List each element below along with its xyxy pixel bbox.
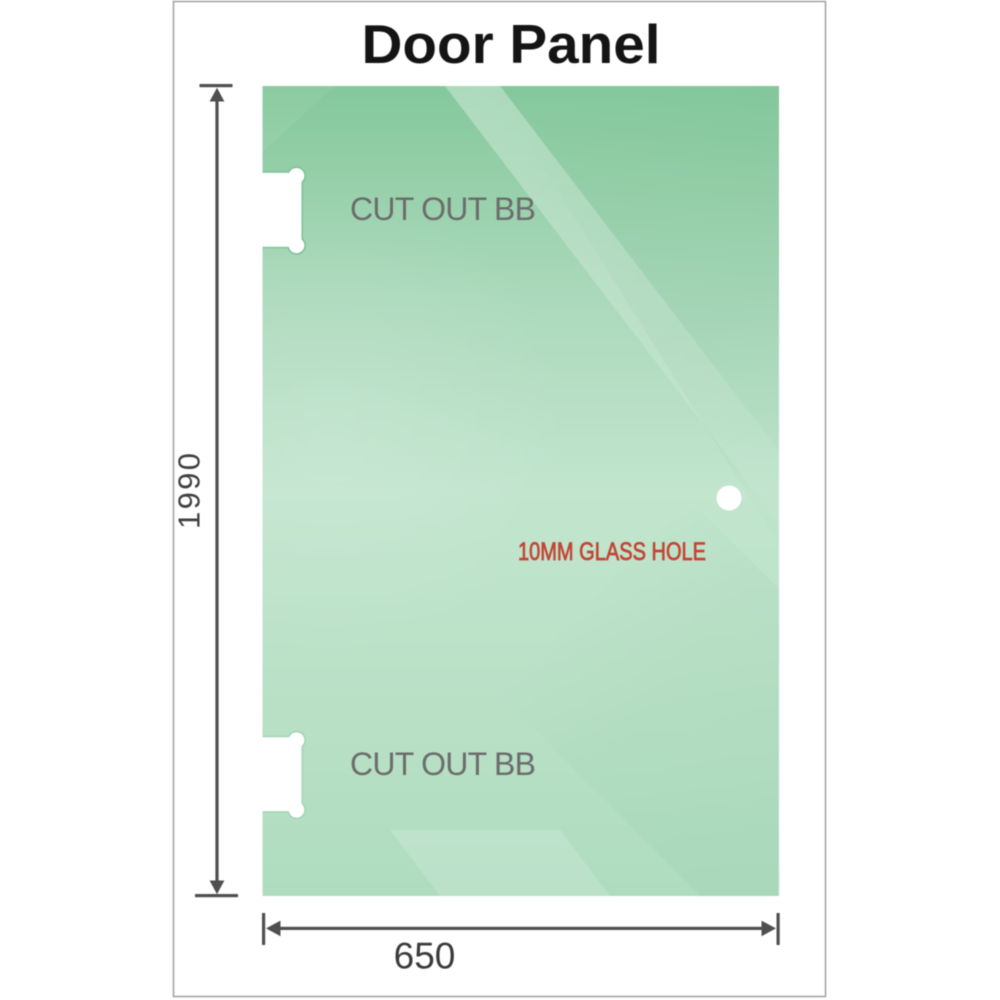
svg-text:Door Panel: Door Panel bbox=[362, 13, 661, 75]
svg-text:650: 650 bbox=[394, 936, 456, 977]
svg-text:CUT OUT BB: CUT OUT BB bbox=[350, 191, 536, 227]
svg-text:1990: 1990 bbox=[172, 453, 207, 529]
svg-text:CUT OUT BB: CUT OUT BB bbox=[350, 746, 536, 782]
svg-text:10MM GLASS HOLE: 10MM GLASS HOLE bbox=[518, 539, 706, 566]
